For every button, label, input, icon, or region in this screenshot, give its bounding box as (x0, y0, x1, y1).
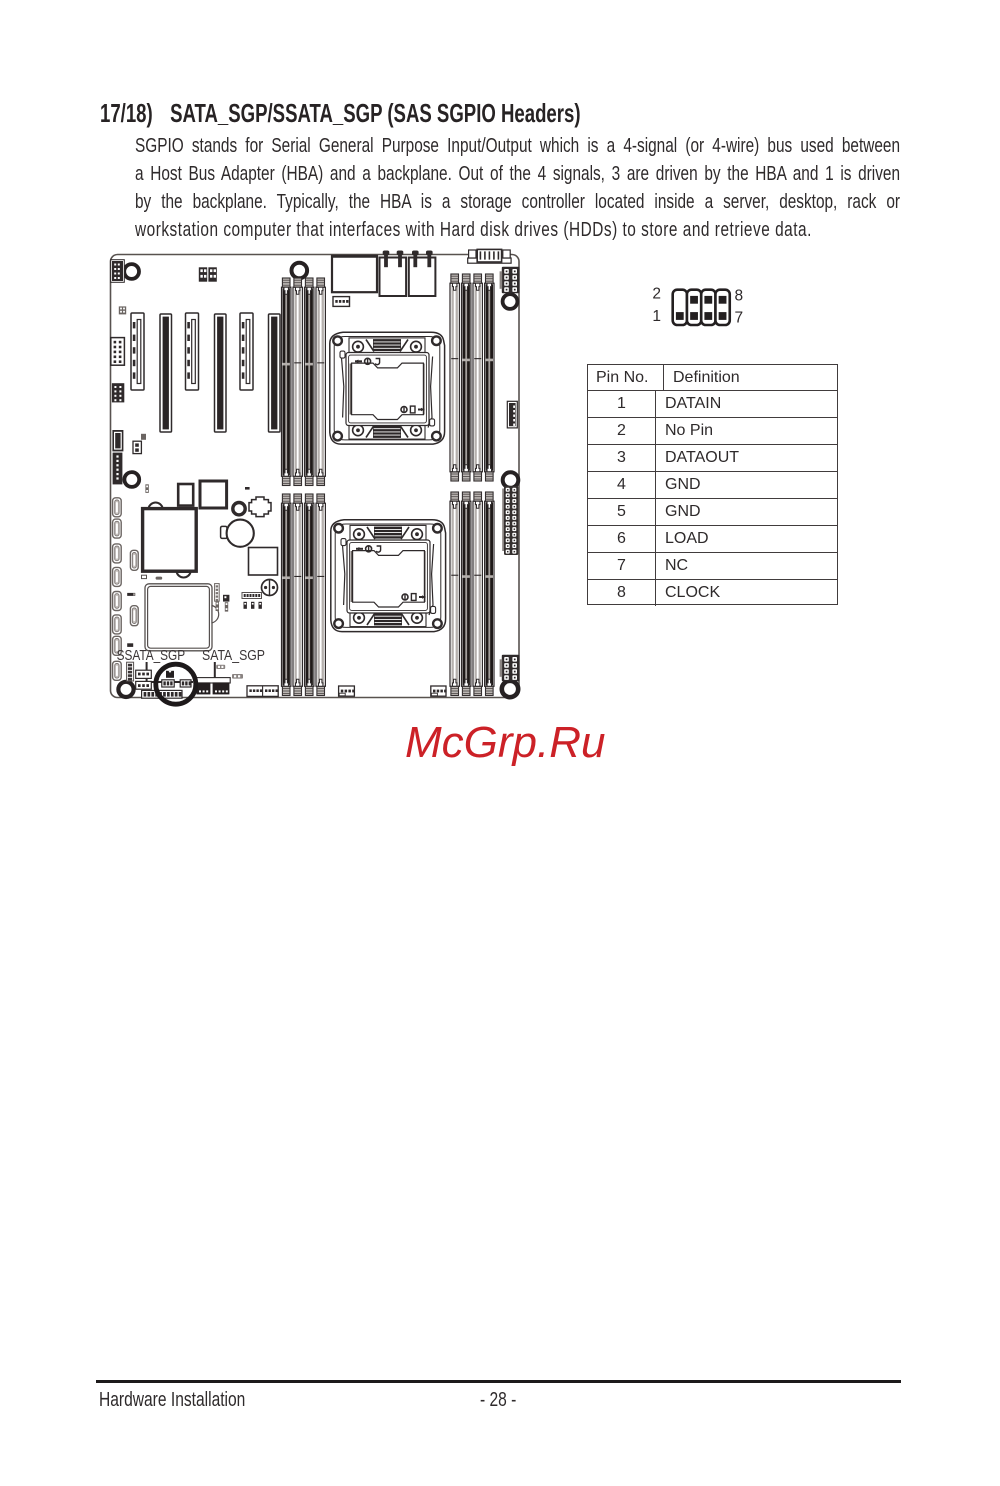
svg-text:SATA_SGP: SATA_SGP (202, 648, 265, 664)
svg-text:1: 1 (652, 308, 661, 325)
svg-text:2: 2 (652, 286, 661, 303)
svg-text:SSATA_SGP: SSATA_SGP (117, 648, 186, 664)
svg-text:8: 8 (735, 288, 744, 305)
svg-text:7: 7 (735, 310, 744, 327)
